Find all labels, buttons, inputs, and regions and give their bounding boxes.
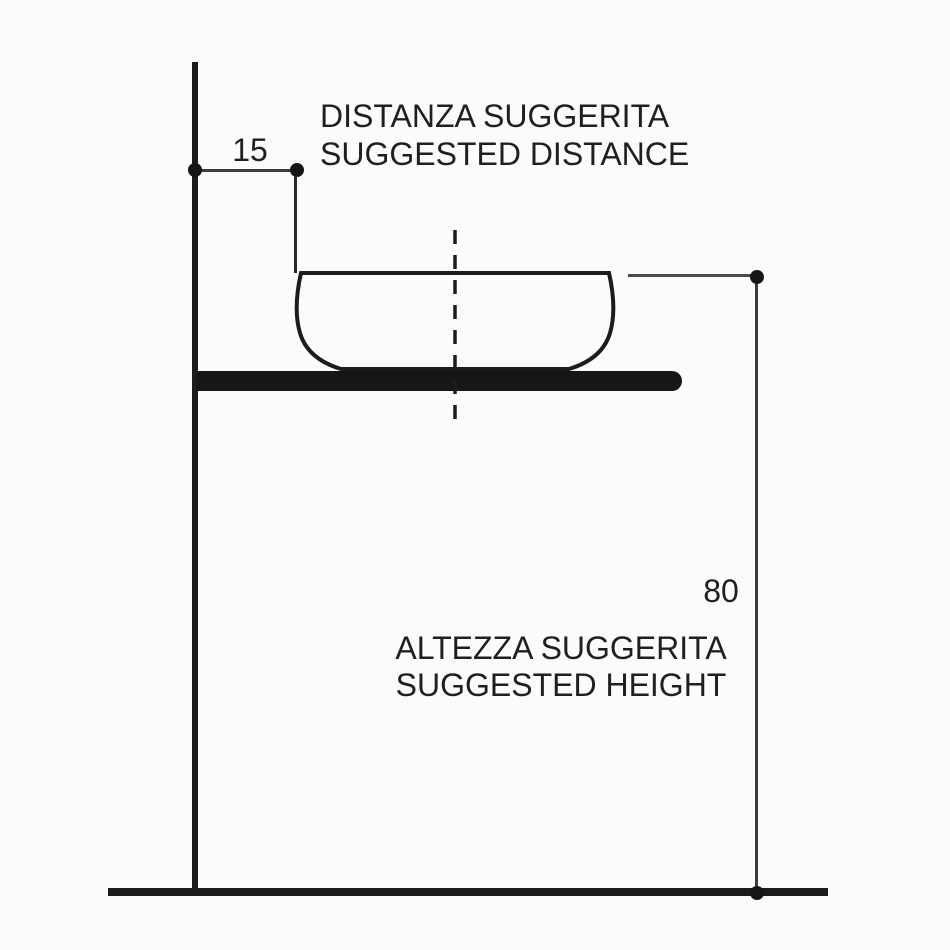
height-extension-line bbox=[628, 274, 754, 277]
height-caption: ALTEZZA SUGGERITA SUGGESTED HEIGHT bbox=[393, 630, 729, 704]
washbasin-outline bbox=[297, 273, 614, 369]
height-caption-italian: ALTEZZA SUGGERITA bbox=[393, 630, 729, 667]
distance-dimension-line bbox=[195, 169, 297, 172]
floor-line bbox=[108, 888, 828, 896]
distance-value: 15 bbox=[222, 132, 278, 169]
distance-dimension-dot-basin bbox=[290, 163, 304, 177]
distance-extension-line bbox=[294, 176, 297, 273]
height-dimension-line bbox=[755, 277, 758, 893]
height-dimension-dot-top bbox=[750, 270, 764, 284]
height-caption-english: SUGGESTED HEIGHT bbox=[393, 667, 729, 704]
height-value: 80 bbox=[691, 573, 751, 610]
height-dimension-dot-floor bbox=[750, 886, 764, 900]
countertop-shelf bbox=[196, 371, 682, 391]
distance-caption: DISTANZA SUGGERITA SUGGESTED DISTANCE bbox=[320, 97, 689, 173]
distance-dimension-dot-wall bbox=[188, 163, 202, 177]
installation-diagram: 15 80 DISTANZA SUGGERITA SUGGESTED DISTA… bbox=[0, 0, 950, 950]
distance-caption-english: SUGGESTED DISTANCE bbox=[320, 135, 689, 173]
wall-line bbox=[192, 62, 198, 893]
distance-caption-italian: DISTANZA SUGGERITA bbox=[320, 97, 689, 135]
